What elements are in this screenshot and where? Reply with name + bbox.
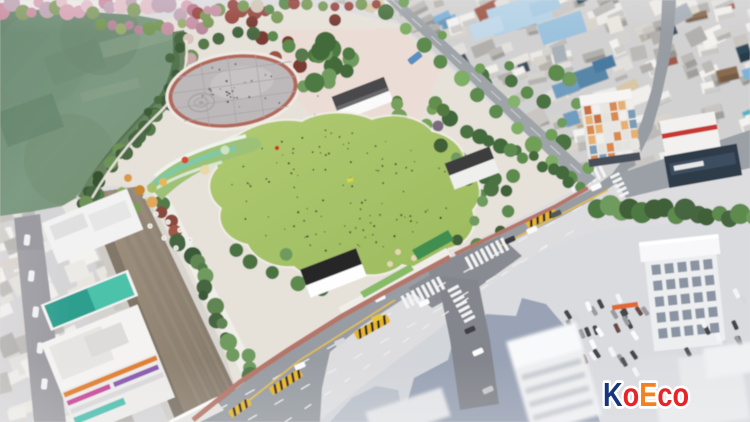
svg-text:c: c	[657, 378, 672, 414]
svg-text:E: E	[639, 378, 657, 414]
svg-text:K: K	[603, 378, 623, 414]
svg-text:o: o	[672, 378, 689, 414]
svg-text:o: o	[623, 378, 640, 414]
